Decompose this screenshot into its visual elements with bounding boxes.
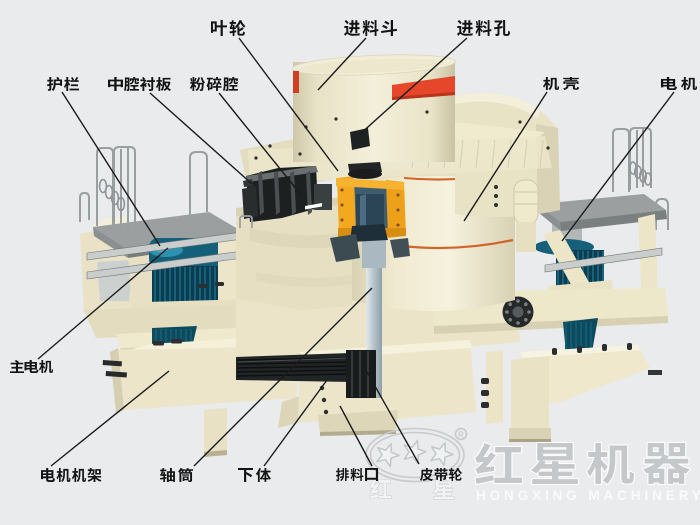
svg-text:R: R [458, 431, 464, 440]
svg-text:HONGXING MACHINERY: HONGXING MACHINERY [476, 488, 700, 503]
